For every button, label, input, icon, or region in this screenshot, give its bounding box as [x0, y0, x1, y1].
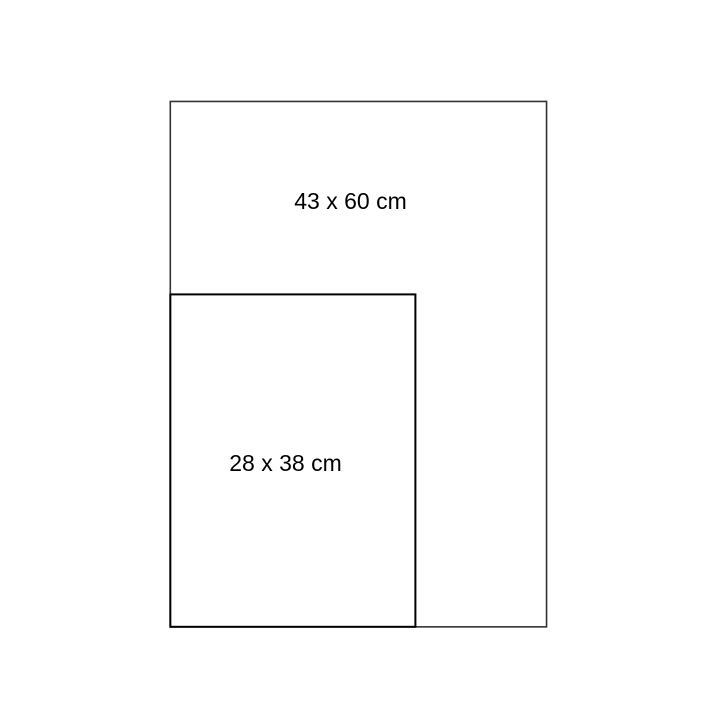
svg-text:28 x 38 cm: 28 x 38 cm [229, 450, 342, 476]
svg-text:43 x 60 cm: 43 x 60 cm [294, 188, 407, 214]
